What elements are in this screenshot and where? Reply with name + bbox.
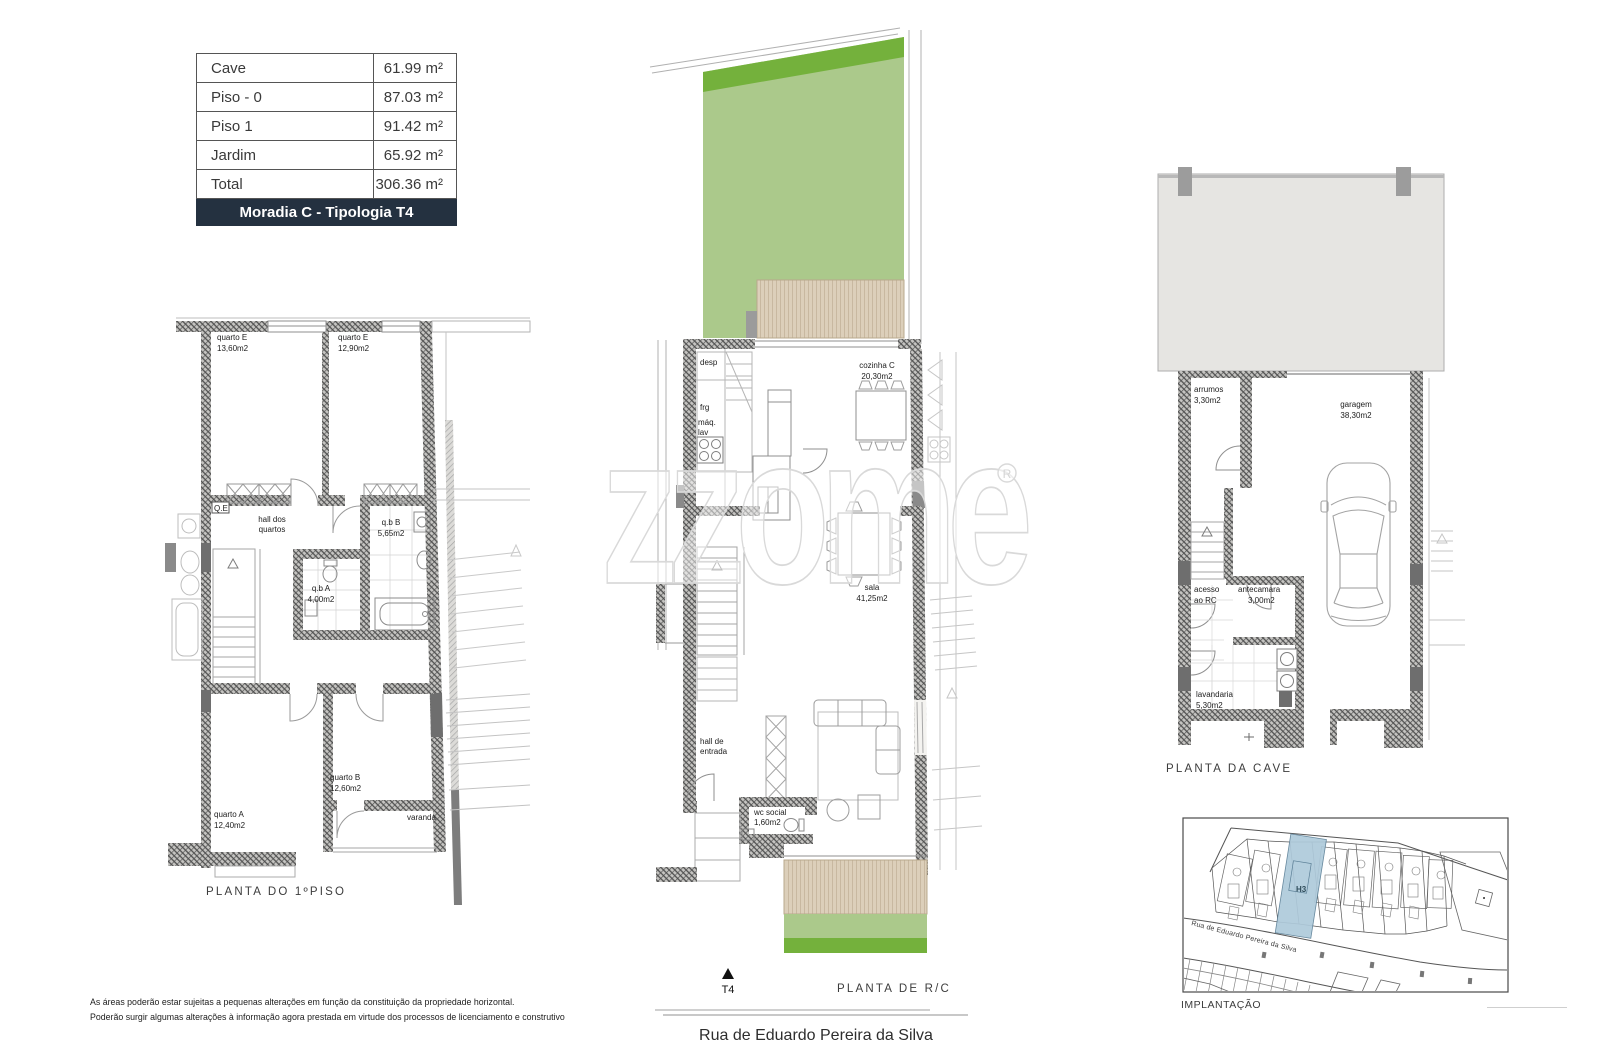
svg-text:1,60m2: 1,60m2 (754, 818, 781, 827)
svg-text:quarto E: quarto E (338, 333, 368, 342)
svg-text:q.b B: q.b B (382, 518, 401, 527)
svg-text:PLANTA DA CAVE: PLANTA DA CAVE (1166, 763, 1292, 775)
svg-text:R: R (1003, 467, 1012, 481)
svg-text:PLANTA DE R/C: PLANTA DE R/C (837, 983, 951, 995)
svg-text:desp: desp (700, 358, 718, 367)
svg-text:arrumos: arrumos (1194, 385, 1223, 394)
svg-text:acesso: acesso (1194, 585, 1220, 594)
svg-text:13,60m2: 13,60m2 (217, 344, 249, 353)
svg-text:20,30m2: 20,30m2 (861, 372, 893, 381)
svg-text:3,30m2: 3,30m2 (1194, 396, 1221, 405)
svg-text:ao RC: ao RC (1194, 596, 1217, 605)
svg-text:quarto A: quarto A (214, 810, 244, 819)
svg-text:4,00m2: 4,00m2 (308, 595, 335, 604)
svg-text:quartos: quartos (259, 525, 286, 534)
svg-text:12,90m2: 12,90m2 (338, 344, 370, 353)
svg-text:IMPLANTAÇÃO: IMPLANTAÇÃO (1181, 998, 1261, 1011)
svg-text:PLANTA DO 1ºPISO: PLANTA DO 1ºPISO (206, 886, 346, 898)
svg-text:cozinha C: cozinha C (859, 361, 895, 370)
svg-text:wc social: wc social (753, 808, 787, 817)
svg-text:varanda: varanda (407, 813, 436, 822)
svg-text:antecamara: antecamara (1238, 585, 1281, 594)
svg-text:q.b A: q.b A (312, 584, 331, 593)
svg-text:3,00m2: 3,00m2 (1248, 596, 1275, 605)
svg-text:5,65m2: 5,65m2 (378, 529, 405, 538)
svg-text:lavandaria: lavandaria (1196, 690, 1233, 699)
svg-text:Q.E: Q.E (214, 504, 228, 513)
svg-text:12,40m2: 12,40m2 (214, 821, 246, 830)
svg-text:hall de: hall de (700, 737, 724, 746)
svg-text:T4: T4 (722, 984, 735, 996)
svg-text:quarto B: quarto B (330, 773, 360, 782)
svg-text:entrada: entrada (700, 747, 728, 756)
svg-text:38,30m2: 38,30m2 (1340, 411, 1372, 420)
svg-text:zzome: zzome (601, 400, 1028, 629)
svg-text:12,60m2: 12,60m2 (330, 784, 362, 793)
svg-text:garagem: garagem (1340, 400, 1372, 409)
svg-text:quarto E: quarto E (217, 333, 247, 342)
svg-text:Rua de Eduardo Pereira da Silv: Rua de Eduardo Pereira da Silva (699, 1027, 933, 1044)
svg-text:hall dos: hall dos (258, 515, 286, 524)
svg-text:5,30m2: 5,30m2 (1196, 701, 1223, 710)
